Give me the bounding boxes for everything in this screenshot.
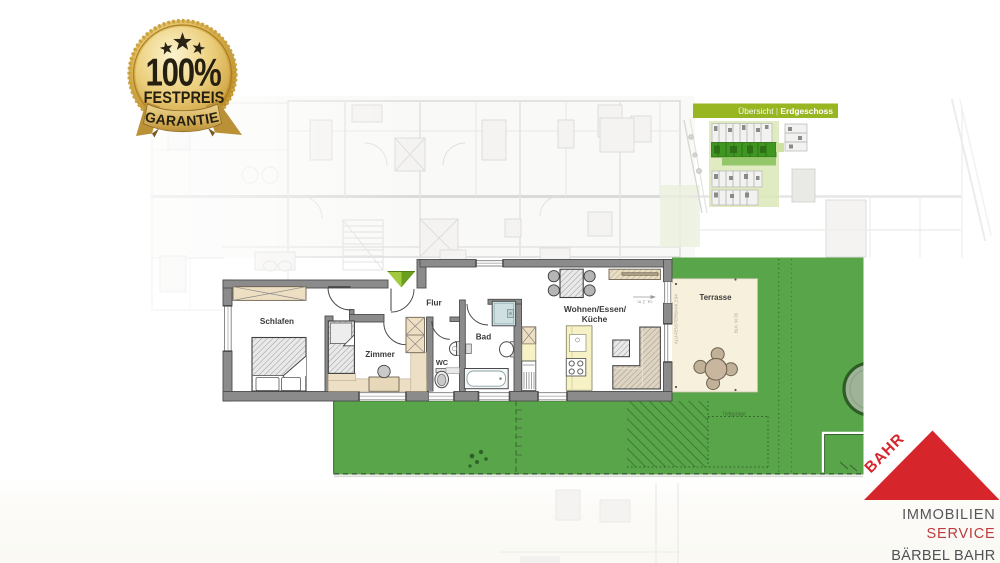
svg-text:Zimmer: Zimmer (365, 350, 395, 359)
svg-text:Terrasse: Terrasse (700, 293, 733, 302)
svg-text:ca. 2 m: ca. 2 m (637, 300, 652, 305)
svg-text:ALU-FENSTERBANK 2.84: ALU-FENSTERBANK 2.84 (674, 294, 679, 344)
svg-text:IMMOBILIEN: IMMOBILIEN (902, 507, 995, 523)
svg-text:Bad: Bad (476, 333, 491, 342)
svg-text:Schlafen: Schlafen (260, 317, 294, 326)
svg-text:Tiefgarage: Tiefgarage (722, 412, 746, 418)
svg-text:Übersicht | Erdgeschoss: Übersicht | Erdgeschoss (738, 106, 833, 116)
svg-text:BLK. W 05: BLK. W 05 (734, 312, 739, 333)
svg-text:BÄRBEL BAHR: BÄRBEL BAHR (891, 547, 995, 563)
svg-text:100%: 100% (146, 51, 222, 94)
svg-text:Flur: Flur (426, 299, 442, 308)
svg-text:Wohnen/Essen/: Wohnen/Essen/ (564, 304, 627, 314)
svg-text:WC: WC (436, 358, 449, 367)
svg-text:SERVICE: SERVICE (927, 526, 996, 542)
svg-text:Küche: Küche (582, 314, 608, 324)
